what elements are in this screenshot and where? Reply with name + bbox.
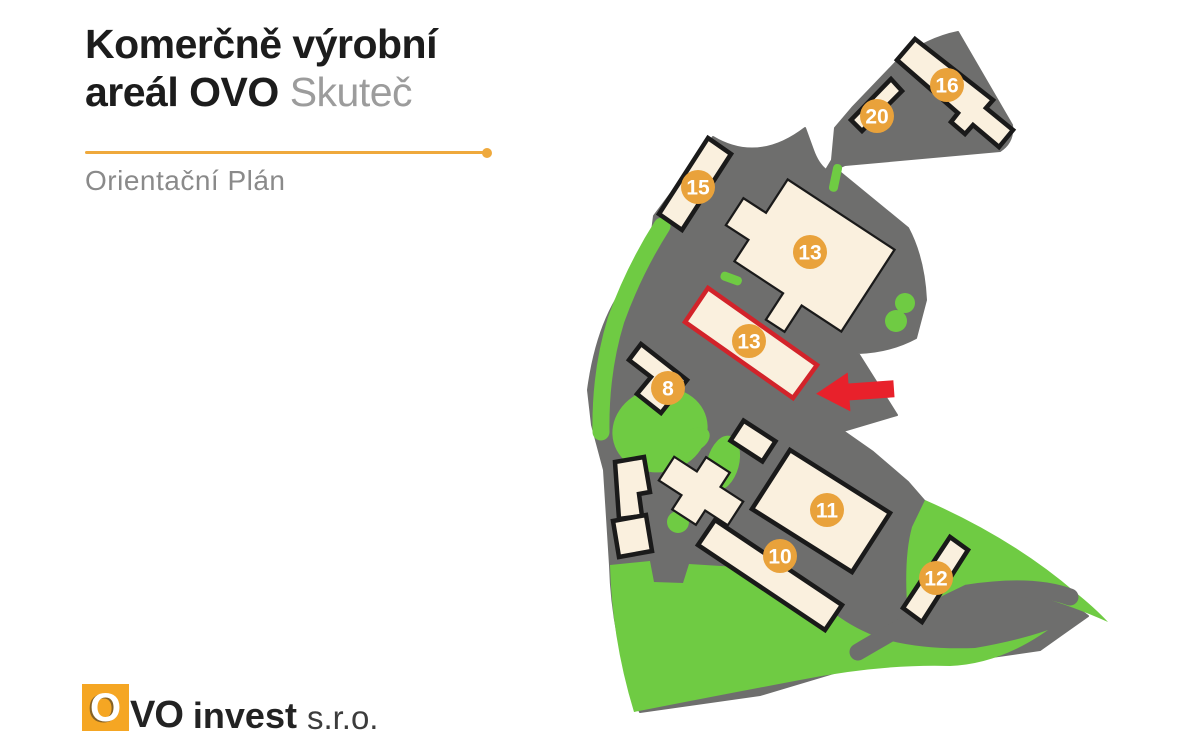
- svg-text:11: 11: [816, 500, 839, 523]
- building-west-b: [613, 515, 652, 557]
- svg-text:13: 13: [798, 242, 821, 265]
- building-marker-11: 11: [810, 493, 844, 527]
- building-marker-8: 8: [651, 371, 685, 405]
- building-marker-12: 12: [919, 561, 953, 595]
- building-marker-10: 10: [763, 539, 797, 573]
- building-marker-13: 13: [793, 235, 827, 269]
- grass-dot-2: [895, 293, 915, 313]
- slide: Komerčně výrobní areál OVO Skuteč Orient…: [0, 0, 1200, 742]
- svg-text:8: 8: [662, 378, 674, 401]
- building-marker-20: 20: [860, 99, 894, 133]
- svg-text:20: 20: [865, 106, 888, 129]
- building-marker-16: 16: [930, 68, 964, 102]
- svg-text:12: 12: [924, 568, 947, 591]
- building-marker-15: 15: [681, 170, 715, 204]
- svg-text:15: 15: [686, 177, 710, 200]
- site-map: 81011121313151620: [0, 0, 1200, 742]
- svg-text:10: 10: [768, 546, 791, 569]
- building-marker-13: 13: [732, 324, 766, 358]
- grass-dot-3: [885, 310, 907, 332]
- svg-text:13: 13: [737, 331, 760, 354]
- svg-text:16: 16: [935, 75, 958, 98]
